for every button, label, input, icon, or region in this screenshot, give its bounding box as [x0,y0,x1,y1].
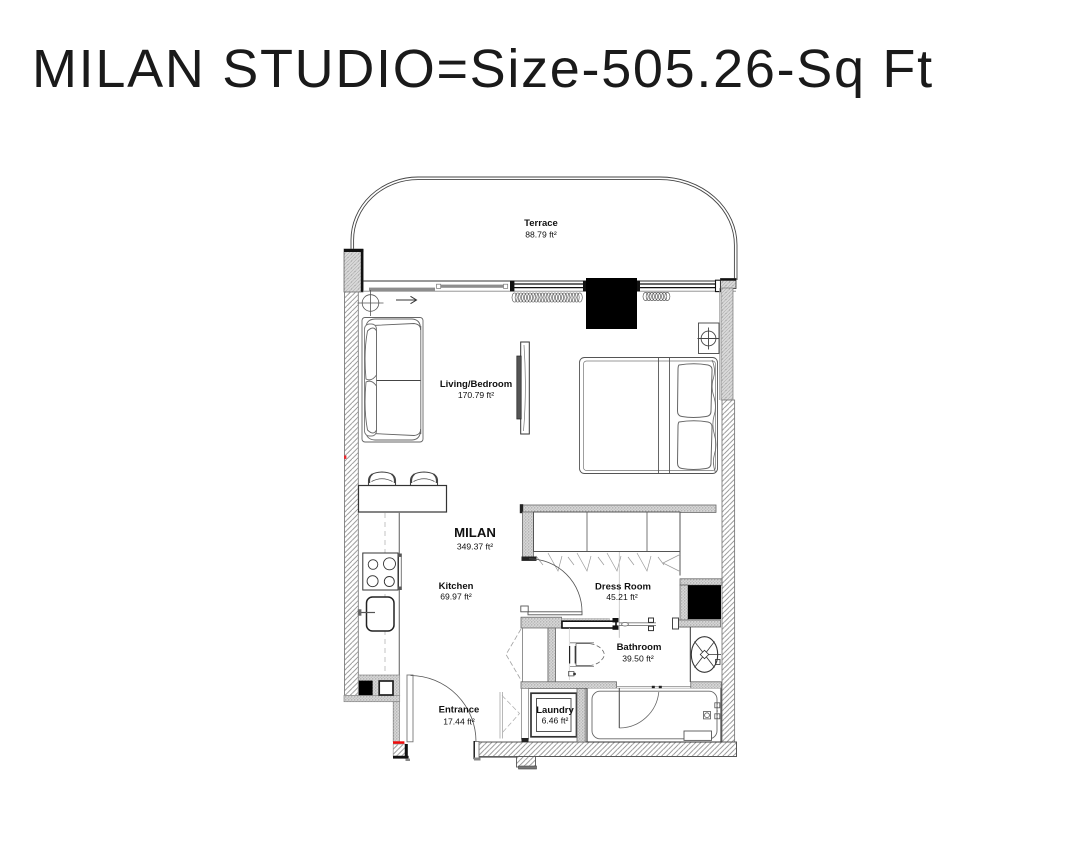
svg-text:349.37 ft²: 349.37 ft² [457,542,493,552]
svg-text:Entrance: Entrance [439,705,480,716]
svg-text:69.97 ft²: 69.97 ft² [440,592,472,602]
svg-text:6.46 ft²: 6.46 ft² [542,716,569,726]
svg-text:Laundry: Laundry [536,705,574,716]
svg-text:17.44 ft²: 17.44 ft² [443,717,475,727]
svg-text:Bathroom: Bathroom [617,642,662,653]
svg-text:88.79 ft²: 88.79 ft² [525,230,557,240]
svg-text:39.50 ft²: 39.50 ft² [622,654,654,664]
svg-text:170.79 ft²: 170.79 ft² [458,390,494,400]
svg-text:45.21 ft²: 45.21 ft² [606,592,638,602]
svg-text:Kitchen: Kitchen [439,581,474,592]
svg-text:Dress Room: Dress Room [595,582,651,593]
svg-text:Terrace: Terrace [524,218,558,229]
svg-text:MILAN: MILAN [454,525,496,540]
svg-text:Living/Bedroom: Living/Bedroom [440,379,512,390]
